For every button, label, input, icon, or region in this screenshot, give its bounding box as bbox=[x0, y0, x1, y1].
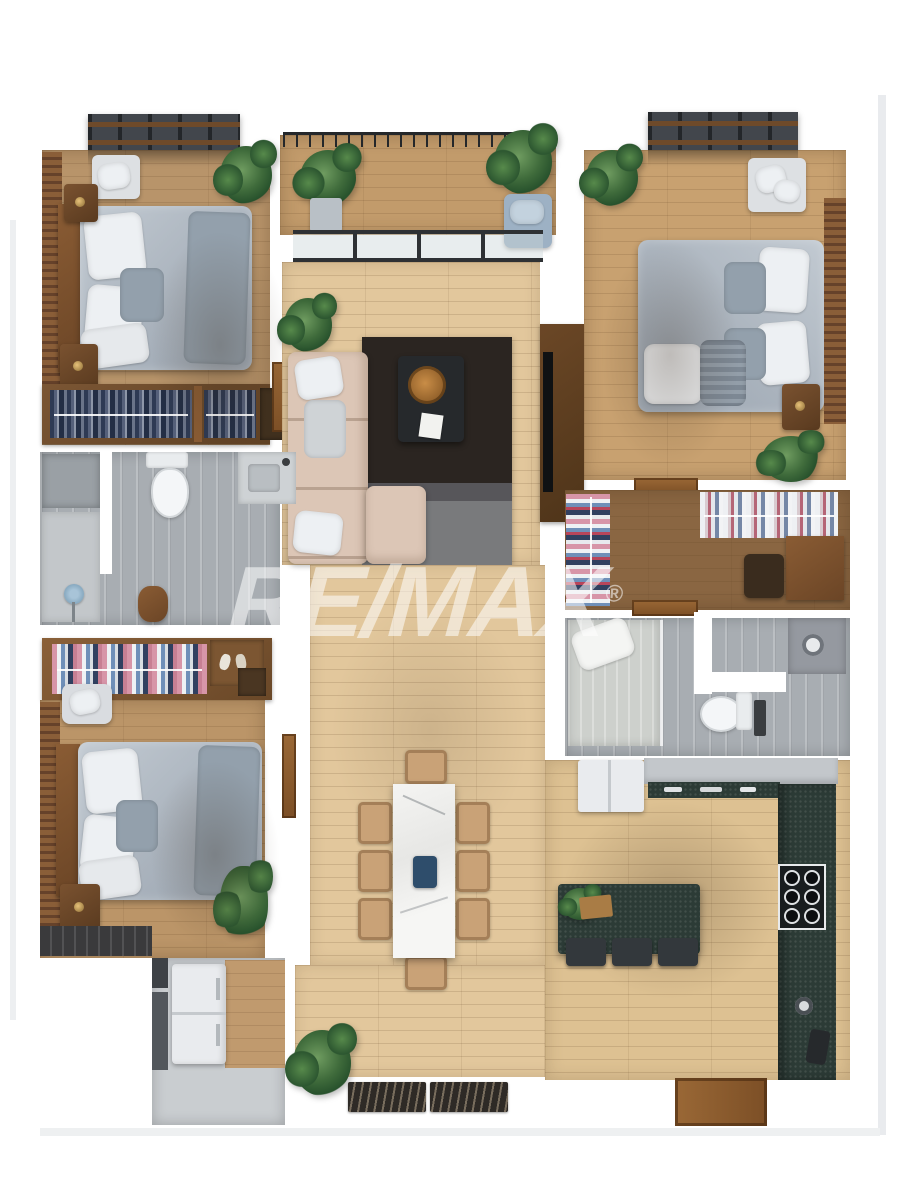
storage-box bbox=[238, 668, 266, 696]
bed2-throw bbox=[700, 340, 746, 406]
tv-screen bbox=[543, 352, 553, 492]
bed2-headboard-slats bbox=[824, 198, 846, 424]
closet-rack-left bbox=[566, 494, 610, 606]
lounge-cushion bbox=[510, 200, 544, 224]
bedroom3-door-threshold bbox=[282, 734, 296, 818]
fridge-divider bbox=[608, 760, 611, 812]
dining-chair bbox=[405, 750, 447, 784]
hanging-clothes-rack bbox=[50, 390, 192, 438]
dining-chair bbox=[405, 956, 447, 990]
bed1-accent-pillow bbox=[120, 268, 164, 322]
burner bbox=[804, 889, 820, 905]
fridge-handle bbox=[216, 1024, 220, 1046]
sliding-glass-door bbox=[293, 230, 543, 262]
laundry-basket bbox=[62, 684, 112, 724]
entry-plant bbox=[293, 1030, 351, 1096]
bathroom1-niche bbox=[42, 512, 100, 622]
clothes-pile bbox=[68, 687, 102, 717]
outer-wall-shadow-right bbox=[878, 95, 886, 1135]
sink-basin bbox=[802, 634, 824, 656]
door-mullion bbox=[417, 230, 421, 262]
bed2-folded-blanket bbox=[644, 344, 702, 404]
bedroom1-plant bbox=[220, 146, 272, 204]
pergola-beam bbox=[88, 140, 240, 145]
clothes-pile bbox=[772, 178, 801, 204]
dining-chair bbox=[358, 898, 392, 940]
magazine bbox=[418, 413, 443, 440]
living-room-plant bbox=[284, 298, 332, 352]
dining-chair bbox=[358, 850, 392, 892]
toilet bbox=[151, 468, 189, 518]
bed2-nightstand bbox=[782, 384, 820, 430]
bedroom1-bench bbox=[92, 155, 140, 199]
bedroom3-plant bbox=[220, 866, 268, 940]
sofa-throw bbox=[304, 400, 346, 458]
dining-chair bbox=[456, 898, 490, 940]
dishes bbox=[700, 787, 722, 792]
bar-stool bbox=[658, 938, 698, 966]
burner bbox=[784, 870, 800, 886]
marble-vein bbox=[403, 795, 446, 816]
shower-stem bbox=[72, 602, 75, 622]
marble-vein bbox=[400, 896, 448, 913]
bed3-accent-pillow bbox=[116, 800, 158, 852]
burner bbox=[804, 908, 820, 924]
lamp bbox=[75, 197, 85, 207]
doormat bbox=[348, 1082, 426, 1112]
bed3-headboard bbox=[56, 744, 80, 896]
outer-wall-shadow-left bbox=[10, 220, 16, 1020]
lamp bbox=[74, 902, 84, 912]
gas-stove bbox=[780, 866, 824, 928]
laundry-counter bbox=[152, 992, 168, 1070]
entry-door-threshold bbox=[675, 1078, 767, 1126]
table-centerpiece bbox=[413, 856, 437, 888]
balcony-planter bbox=[310, 198, 342, 232]
bedroom2-bench bbox=[748, 158, 806, 212]
dishes bbox=[740, 787, 756, 792]
sofa-pillow bbox=[292, 510, 344, 557]
door-mullion bbox=[353, 230, 357, 262]
bedroom2-plant-bottom bbox=[762, 436, 820, 482]
shower-bench bbox=[569, 615, 637, 672]
dining-chair bbox=[456, 850, 490, 892]
bathroom1-wall bbox=[100, 452, 112, 574]
closet-rack-top bbox=[700, 492, 838, 538]
pergola-beam bbox=[88, 122, 240, 127]
bedroom1-closet bbox=[42, 384, 270, 444]
hanging-clothes-rack bbox=[204, 390, 256, 438]
bed1-duvet-pillow bbox=[183, 211, 250, 365]
toilet-tank bbox=[736, 692, 752, 730]
burner bbox=[804, 870, 820, 886]
bathroom2-vanity bbox=[788, 618, 846, 674]
bar-stool bbox=[612, 938, 652, 966]
dining-table bbox=[393, 784, 455, 958]
kitchen-fridge bbox=[578, 760, 644, 812]
burner bbox=[784, 908, 800, 924]
dining-chair bbox=[456, 802, 490, 844]
faucet bbox=[282, 458, 290, 466]
toilet-tank bbox=[146, 452, 188, 468]
lamp bbox=[73, 361, 83, 371]
fridge-handle bbox=[216, 978, 220, 1000]
cutting-board bbox=[579, 894, 613, 919]
kitchen-counter-top bbox=[644, 758, 838, 784]
closet-desk bbox=[786, 536, 844, 600]
dining-chair bbox=[358, 802, 392, 844]
fridge-divider bbox=[172, 1012, 226, 1015]
clothes-pile bbox=[96, 161, 131, 191]
bar-stool bbox=[566, 938, 606, 966]
dishes bbox=[664, 787, 682, 792]
shower-glass bbox=[660, 620, 663, 746]
bathroom-fixture bbox=[754, 700, 766, 736]
bed3-nightstand bbox=[60, 884, 100, 932]
pergola-beam bbox=[648, 140, 798, 145]
bathroom1-vanity bbox=[238, 452, 296, 504]
burner bbox=[784, 889, 800, 905]
coffee-table bbox=[398, 356, 464, 442]
shower-head bbox=[64, 584, 84, 604]
sink-basin bbox=[248, 464, 280, 492]
sofa-pillow bbox=[293, 355, 345, 402]
bedroom3-mat bbox=[40, 926, 152, 956]
door-mullion bbox=[481, 230, 485, 262]
refrigerator bbox=[172, 964, 226, 1064]
bed2-accent-pillow bbox=[724, 262, 766, 314]
kitchen-counter-front bbox=[648, 782, 780, 798]
outer-wall-shadow-bottom bbox=[40, 1128, 880, 1136]
closet-chair bbox=[744, 554, 784, 598]
floorplan-render: RE/MAX® bbox=[0, 0, 900, 1200]
shoes bbox=[218, 653, 232, 671]
closet-door-threshold bbox=[632, 600, 698, 616]
bedroom2-plant-top bbox=[586, 150, 638, 206]
doormat bbox=[430, 1082, 508, 1112]
closet-post bbox=[194, 386, 202, 442]
bed1-nightstand-top bbox=[64, 184, 98, 222]
laundry-wood-floor bbox=[225, 960, 285, 1068]
wooden-tray bbox=[408, 366, 446, 404]
bathroom2-shower bbox=[568, 620, 660, 746]
balcony-plant-right bbox=[494, 130, 552, 194]
shower-stool bbox=[138, 586, 168, 622]
bathroom2-wall bbox=[694, 672, 786, 692]
bed1 bbox=[80, 206, 252, 370]
kitchen-faucet bbox=[795, 997, 813, 1015]
sofa-chaise bbox=[366, 486, 426, 564]
pergola-beam bbox=[648, 121, 798, 126]
laundry-counter-corner bbox=[152, 958, 168, 988]
bathroom1-cabinet bbox=[42, 454, 100, 508]
lamp bbox=[795, 401, 805, 411]
